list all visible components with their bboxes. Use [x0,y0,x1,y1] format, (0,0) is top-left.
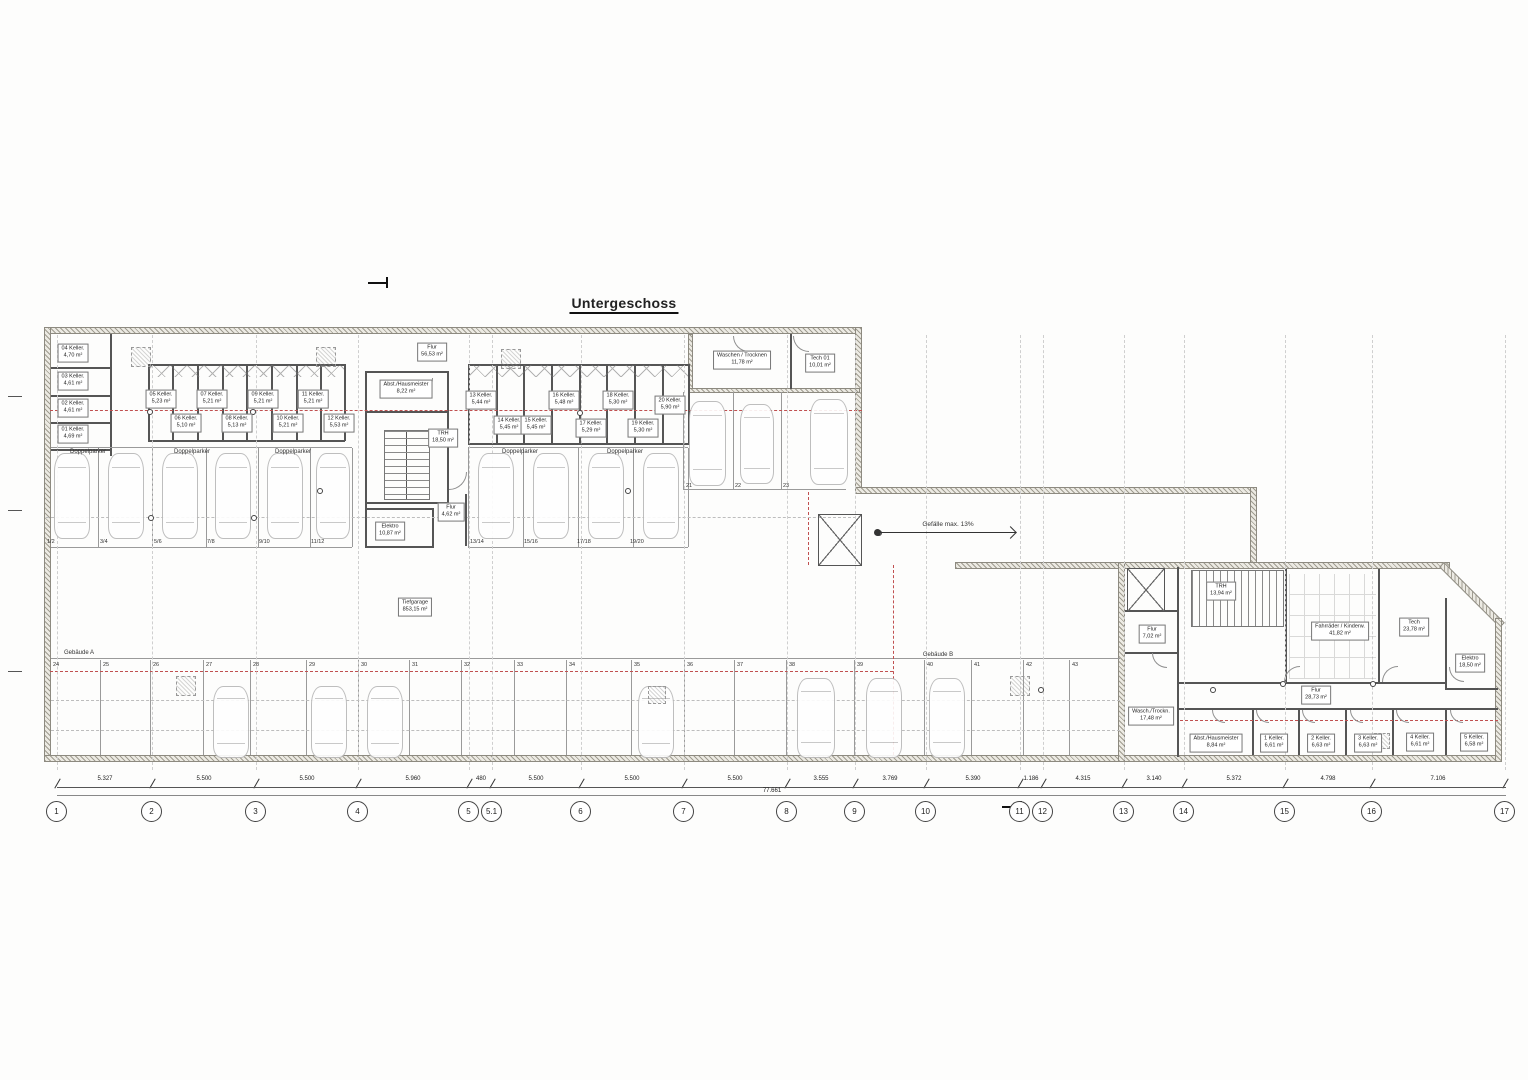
room-label: 11 Keller. 5,21 m² [298,390,329,409]
room-name: 06 Keller. [175,416,198,423]
parking-spot-number: 17/18 [577,539,591,545]
room-label: Flur 56,53 m² [417,343,447,362]
elevator-icon [1127,568,1165,612]
room-area: 4,62 m² [442,512,461,519]
car-icon [689,401,726,486]
room-label: Fahrräder / Kinderw. 41,82 m² [1311,622,1369,641]
axis-grid-line [1124,335,1125,770]
room-area: 11,78 m² [717,360,767,367]
room-label: 20 Keller. 5,90 m² [655,396,686,415]
car-icon [311,686,347,758]
floor-plan: Untergeschoss 1 2 3 [0,0,1528,1080]
survey-point-icon [577,410,583,416]
car-icon [588,453,624,539]
room-label: 17 Keller. 5,29 m² [576,419,607,438]
room-label: 04 Keller. 4,70 m² [58,344,89,363]
plan-line [306,660,307,755]
ramp-slope-label: Gefälle max. 13% [922,521,973,528]
shaft-marker [316,347,336,367]
axis-bubble: 5 [458,801,479,822]
plan-line [258,448,259,547]
dimension-value: 5.327 [97,776,112,782]
room-label: Elektro 10,87 m² [375,522,405,541]
room-area: 5,30 m² [607,400,630,407]
parking-spot-number: 7/8 [207,539,215,545]
plan-line [352,448,353,547]
dimension-value: 4.315 [1075,776,1090,782]
room-label: Tech 23,78 m² [1399,618,1429,637]
axis-bubble: 14 [1173,801,1194,822]
plan-line [50,410,862,411]
plan-line [1298,710,1300,755]
zone-label: Doppelparker [174,449,210,455]
survey-point-icon [1038,687,1044,693]
room-area: 853,15 m² [402,607,428,614]
room-name: 15 Keller. [525,418,548,425]
plan-line [1445,598,1447,690]
plan-line [1023,660,1024,755]
room-name: 10 Keller. [277,416,300,423]
room-name: Waschen / Trocknen [717,353,767,360]
parking-spot-number: 40 [927,662,933,668]
plan-line [631,660,632,755]
room-area: 10,87 m² [379,531,401,538]
parking-spot-number: 19/20 [630,539,644,545]
axis-grid-line [1020,335,1021,770]
room-label: 09 Keller. 5,21 m² [248,390,279,409]
axis-grid-line [1372,335,1373,770]
plan-line [365,371,448,373]
wall-segment [44,327,862,334]
parking-spot-number: 37 [737,662,743,668]
room-label: 06 Keller. 5,10 m² [171,414,202,433]
stairs-icon [1191,570,1284,627]
room-area: 5,53 m² [328,423,351,430]
axis-grid-line [1505,335,1506,770]
room-area: 5,21 m² [277,423,300,430]
axis-grid-line [787,335,788,770]
plan-line [1069,660,1070,755]
room-label: 05 Keller. 5,23 m² [146,390,177,409]
dimension-total-line [57,795,1506,796]
room-area: 6,61 m² [1410,742,1430,749]
axis-bubble: 1 [46,801,67,822]
plan-line [206,448,207,547]
plan-line [808,492,809,565]
room-label: 1 Keller. 6,61 m² [1260,734,1288,753]
car-icon [213,686,249,758]
page-title: Untergeschoss [569,295,678,314]
plan-line [365,508,433,510]
plan-line [409,660,410,755]
room-area: 4,61 m² [62,408,85,415]
car-icon [478,453,514,539]
plan-line [51,658,1120,659]
room-label: 2 Keller. 6,63 m² [1307,734,1335,753]
room-area: 5,23 m² [150,399,173,406]
plan-line [51,422,111,424]
room-area: 56,53 m² [421,352,443,359]
survey-point-icon [1210,687,1216,693]
zone-label: Doppelparker [607,449,643,455]
room-name: Elektro [1459,656,1481,663]
car-icon [267,453,303,539]
dimension-value: 5.500 [528,776,543,782]
parking-spot-number: 9/10 [259,539,270,545]
room-label: Waschen / Trocknen 11,78 m² [713,351,771,370]
plan-line [465,494,467,546]
parking-spot-number: 42 [1026,662,1032,668]
room-label: 15 Keller. 5,45 m² [521,416,552,435]
room-name: 11 Keller. [302,392,325,399]
car-icon [162,453,198,539]
wall-segment [1250,487,1257,567]
plan-line [365,546,433,548]
dimension-value: 5.960 [405,776,420,782]
plan-line [432,508,434,548]
plan-line [50,671,893,672]
parking-spot-number: 28 [253,662,259,668]
room-name: Flur [1143,627,1162,634]
room-label: Wasch./Trockn. 17,48 m² [1128,707,1174,726]
room-area: 23,78 m² [1403,627,1425,634]
garage-gate-icon [818,514,862,566]
plan-line [1178,682,1446,684]
plan-line [365,371,367,548]
room-name: Tech 01 [809,356,831,363]
axis-bubble: 13 [1113,801,1134,822]
room-area: 5,45 m² [498,425,521,432]
dimension-value: 5.390 [965,776,980,782]
room-name: 12 Keller. [328,416,351,423]
ramp-arrow [880,532,1016,533]
plan-line [365,411,448,413]
axis-bubble: 8 [776,801,797,822]
room-name: 04 Keller. [62,346,85,353]
plan-line [971,660,972,755]
car-icon [643,453,679,539]
axis-bubble: 9 [844,801,865,822]
room-name: 17 Keller. [580,421,603,428]
room-name: 02 Keller. [62,401,85,408]
parking-spot-number: 21 [686,483,692,489]
plan-line [203,660,204,755]
shaft-marker [1010,676,1030,696]
parking-spot-number: 38 [789,662,795,668]
room-label: 3 Keller. 6,63 m² [1354,734,1382,753]
zone-label: Doppelparker [70,449,106,455]
parking-spot-number: 25 [103,662,109,668]
plan-line [734,660,735,755]
dimension-value: 1.186 [1023,776,1038,782]
room-label: 10 Keller. 5,21 m² [273,414,304,433]
wall-segment [855,487,1257,494]
plan-line [523,448,524,547]
parking-spot-number: 27 [206,662,212,668]
room-area: 5,21 m² [302,399,325,406]
dimension-value: 5.372 [1226,776,1241,782]
door-swing-icon [1450,710,1463,723]
room-area: 10,01 m² [809,363,831,370]
plan-line [51,395,111,397]
room-name: 5 Keller. [1464,735,1484,742]
survey-point-icon [251,515,257,521]
plan-line [8,510,22,511]
room-label: Tiefgarage 853,15 m² [398,598,432,617]
plan-line [51,367,111,369]
plan-line [790,334,792,389]
plan-line [8,671,22,672]
plan-line [1445,710,1447,755]
room-label: 13 Keller. 5,44 m² [466,391,497,410]
axis-grid-line [1184,335,1185,770]
dimension-value: 5.500 [727,776,742,782]
ramp-arrowhead-icon [1004,526,1017,539]
axis-grid-line [1285,335,1286,770]
plan-line [578,448,579,547]
door-swing-icon [1396,710,1409,723]
plan-line [733,392,734,490]
room-area: 13,94 m² [1210,591,1232,598]
plan-line [8,396,22,397]
dimension-value: 3.555 [813,776,828,782]
room-name: 16 Keller. [553,393,576,400]
survey-point-icon [1280,681,1286,687]
room-label: 18 Keller. 5,30 m² [603,391,634,410]
plan-line [310,448,311,547]
room-name: 14 Keller. [498,418,521,425]
plan-line [386,277,388,288]
room-label: Abst./Hausmeister 8,22 m² [380,380,433,399]
room-name: 01 Keller. [62,427,85,434]
room-name: 08 Keller. [226,416,249,423]
axis-bubble: 3 [245,801,266,822]
room-name: 18 Keller. [607,393,630,400]
parking-spot-number: 29 [309,662,315,668]
room-name: 09 Keller. [252,392,275,399]
axis-grid-line [926,335,927,770]
car-icon [929,678,965,758]
wall-segment [1495,618,1502,762]
axis-bubble: 15 [1274,801,1295,822]
zone-label: Gebäude A [64,650,94,656]
dimension-value: 3.769 [882,776,897,782]
dimension-value: 5.500 [299,776,314,782]
plan-line [51,547,352,548]
room-area: 7,02 m² [1143,634,1162,641]
shaft-marker [648,686,666,704]
parking-spot-number: 33 [517,662,523,668]
room-label: 08 Keller. 5,13 m² [222,414,253,433]
room-area: 4,69 m² [62,434,85,441]
car-icon [367,686,403,758]
room-name: Elektro [379,524,401,531]
door-swing-icon [1382,666,1398,682]
room-label: 07 Keller. 5,21 m² [197,390,228,409]
axis-bubble: 17 [1494,801,1515,822]
room-area: 5,48 m² [553,400,576,407]
room-area: 6,63 m² [1358,743,1378,750]
room-area: 41,82 m² [1315,631,1365,638]
plan-line [781,392,782,490]
dimension-value: 480 [476,776,486,782]
plan-line [1177,567,1179,757]
axis-bubble: 6 [570,801,591,822]
room-label: Flur 7,02 m² [1139,625,1166,644]
dimension-value: 4.798 [1320,776,1335,782]
plan-line [468,547,688,548]
room-label: 01 Keller. 4,69 m² [58,425,89,444]
room-area: 8,84 m² [1194,743,1239,750]
room-label: TRH 18,50 m² [428,429,458,448]
car-icon [533,453,569,539]
plan-line [1378,569,1380,682]
survey-point-icon [148,515,154,521]
plan-line [1180,720,1498,721]
room-name: 4 Keller. [1410,735,1430,742]
room-name: 1 Keller. [1264,736,1284,743]
plan-line [1445,688,1498,690]
room-name: Tiefgarage [402,600,428,607]
parking-spot-number: 3/4 [100,539,108,545]
plan-line [461,660,462,755]
room-area: 5,30 m² [632,428,655,435]
room-label: Flur 28,73 m² [1301,686,1331,705]
door-swing-icon [793,336,809,352]
plan-line [924,660,925,755]
parking-spot-number: 30 [361,662,367,668]
door-swing-icon [1256,710,1269,723]
room-label: Elektro 18,50 m² [1455,654,1485,673]
dimension-value: 3.140 [1146,776,1161,782]
parking-spot-number: 34 [569,662,575,668]
room-name: TRH [432,431,454,438]
room-name: Wasch./Trockn. [1132,709,1170,716]
shaft-marker [131,347,151,367]
room-label: 12 Keller. 5,53 m² [324,414,355,433]
room-name: Abst./Hausmeister [384,382,429,389]
room-name: 19 Keller. [632,421,655,428]
plan-line [1392,710,1394,755]
room-area: 4,70 m² [62,353,85,360]
room-area: 18,50 m² [1459,663,1481,670]
room-name: 05 Keller. [150,392,173,399]
plan-line [1252,710,1254,755]
car-icon [54,453,90,539]
room-area: 5,10 m² [175,423,198,430]
survey-point-icon [317,488,323,494]
door-swing-icon [1212,710,1225,723]
room-label: 02 Keller. 4,61 m² [58,399,89,418]
car-icon [810,399,848,485]
parking-spot-number: 11/12 [311,539,324,545]
room-area: 5,44 m² [470,400,493,407]
parking-spot-number: 15/16 [524,539,538,545]
room-label: Flur 4,62 m² [438,503,465,522]
room-area: 6,61 m² [1264,743,1284,750]
plan-line [514,660,515,755]
wall-segment [44,755,1502,762]
plan-line [150,660,151,755]
room-name: Abst./Hausmeister [1194,736,1239,743]
car-icon [316,453,350,539]
zone-label: Doppelparker [502,449,538,455]
room-name: 20 Keller. [659,398,682,405]
room-label: TRH 13,94 m² [1206,582,1236,601]
parking-spot-number: 31 [412,662,418,668]
room-label: Tech 01 10,01 m² [805,354,835,373]
car-icon [866,678,902,758]
parking-spot-number: 43 [1072,662,1078,668]
axis-bubble: 5.1 [481,801,502,822]
axis-grid-line [581,335,582,770]
wall-segment [688,388,860,393]
survey-point-icon [147,409,153,415]
room-name: 2 Keller. [1311,736,1331,743]
dimension-value: 7.106 [1430,776,1445,782]
zone-label: Doppelparker [275,449,311,455]
axis-bubble: 11 [1009,801,1030,822]
plan-line [566,660,567,755]
axis-bubble: 12 [1032,801,1053,822]
plan-line [100,660,101,755]
plan-line [51,447,352,448]
room-name: TRH [1210,584,1232,591]
room-area: 5,21 m² [252,399,275,406]
axis-grid-line [358,335,359,770]
parking-spot-number: 35 [634,662,640,668]
plan-line [633,448,634,547]
door-swing-icon [1302,710,1315,723]
door-swing-icon [1152,653,1167,668]
room-area: 17,48 m² [1132,716,1170,723]
room-area: 5,21 m² [201,399,224,406]
car-icon [215,453,251,539]
parking-spot-number: 22 [735,483,741,489]
room-area: 5,90 m² [659,405,682,412]
parking-spot-number: 39 [857,662,863,668]
room-area: 5,29 m² [580,428,603,435]
room-area: 5,45 m² [525,425,548,432]
axis-grid-line [1043,335,1044,770]
door-swing-icon [449,472,467,490]
shaft-marker [501,349,521,369]
survey-point-icon [1370,681,1376,687]
parking-spot-number: 1/2 [47,539,55,545]
room-label: 19 Keller. 5,30 m² [628,419,659,438]
car-icon [797,678,835,758]
zone-label: Gebäude B [923,652,953,658]
plan-line [98,448,99,547]
plan-line [683,489,846,490]
axis-bubble: 10 [915,801,936,822]
car-icon [108,453,144,539]
room-area: 4,61 m² [62,381,85,388]
room-label: 5 Keller. 6,58 m² [1460,733,1488,752]
parking-spot-number: 32 [464,662,470,668]
room-name: 3 Keller. [1358,736,1378,743]
room-area: 28,73 m² [1305,695,1327,702]
parking-spot-number: 36 [687,662,693,668]
room-label: 16 Keller. 5,48 m² [549,391,580,410]
parking-spot-number: 13/14 [470,539,484,545]
parking-spot-number: 24 [53,662,59,668]
axis-bubble: 2 [141,801,162,822]
survey-point-icon [625,488,631,494]
plan-line [1345,710,1347,755]
car-icon [740,404,774,484]
room-label: 03 Keller. 4,61 m² [58,372,89,391]
